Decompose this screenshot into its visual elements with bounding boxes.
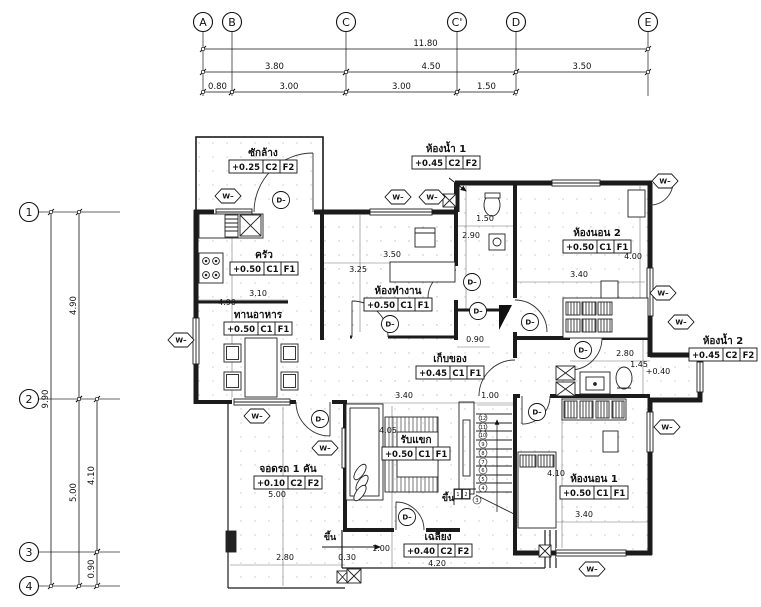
stair-number: 6 bbox=[481, 468, 484, 474]
stair-number: 11 bbox=[480, 425, 486, 431]
plan-dimension-text: 3.40 bbox=[570, 270, 588, 279]
dimension-node bbox=[201, 70, 204, 73]
window-symbol-label: W– bbox=[175, 337, 187, 345]
column-grid-label: D bbox=[512, 16, 520, 29]
floor-plan-sheet: ABCC'DE123411.803.804.503.500.803.003.00… bbox=[0, 0, 761, 607]
dimension-node bbox=[455, 90, 458, 93]
stair-number: 8 bbox=[481, 451, 484, 457]
room-f-tag: F2 bbox=[743, 351, 755, 361]
dimension-text: 4.50 bbox=[422, 62, 441, 72]
dimension-node bbox=[77, 397, 80, 400]
column-grid-label: C' bbox=[452, 16, 463, 29]
bed-bedroom1 bbox=[518, 452, 556, 528]
room-f-tag: F1 bbox=[418, 301, 430, 311]
stair-number: 4 bbox=[481, 486, 484, 492]
toilet-bath2 bbox=[616, 367, 632, 389]
window-symbol-label: W– bbox=[392, 194, 404, 202]
room-f-tag: F1 bbox=[614, 489, 626, 499]
plan-dimension-text: 4.10 bbox=[547, 469, 565, 478]
room-level: +0.10 bbox=[257, 479, 285, 489]
dimension-node bbox=[201, 47, 204, 50]
door-symbol-label: D– bbox=[532, 409, 542, 417]
dimension-node bbox=[344, 70, 347, 73]
dimension-node bbox=[49, 584, 52, 587]
stair-number: 9 bbox=[481, 442, 484, 448]
plan-dimension-text: 2.90 bbox=[462, 231, 480, 240]
plan-dimension-text: 4.00 bbox=[624, 252, 642, 261]
window bbox=[193, 318, 199, 364]
room-name: ทานอาหาร bbox=[234, 310, 283, 321]
plan-dimension-text: 0.30 bbox=[338, 553, 356, 562]
room-level: +0.45 bbox=[692, 351, 720, 361]
room-level: +0.45 bbox=[419, 369, 447, 379]
basin-bath1 bbox=[489, 234, 505, 250]
room-level: +0.45 bbox=[415, 159, 443, 169]
room-f-tag: F2 bbox=[283, 163, 295, 173]
row-grid-label: 3 bbox=[26, 546, 33, 559]
tv-cabinet bbox=[346, 404, 383, 503]
window-symbol-label: W– bbox=[319, 445, 331, 453]
plan-dimension-text: 1.50 bbox=[476, 214, 494, 223]
window bbox=[552, 180, 600, 186]
dimension-text: 11.80 bbox=[413, 39, 437, 49]
room-c-tag: C1 bbox=[266, 265, 278, 275]
plan-dimension-text: 2.80 bbox=[616, 349, 634, 358]
column-grid-label: B bbox=[228, 16, 236, 29]
window-symbol-label: W– bbox=[426, 194, 438, 202]
stair-number: 2 bbox=[464, 492, 467, 498]
room-name: เฉลียง bbox=[424, 531, 451, 543]
duct-box bbox=[443, 194, 456, 207]
dimension-text: 3.50 bbox=[573, 62, 592, 72]
room-c-tag: C1 bbox=[418, 450, 430, 460]
door-symbol-label: D– bbox=[385, 321, 395, 329]
dimension-text: 3.00 bbox=[392, 82, 411, 92]
stair-number: 5 bbox=[481, 477, 484, 483]
stair-number: 1 bbox=[456, 492, 459, 498]
room-f-tag: F2 bbox=[308, 479, 320, 489]
room-name: ห้องน้ำ 1 bbox=[426, 141, 466, 155]
room-name: ซักล้าง bbox=[248, 147, 278, 159]
room-name: ครัว bbox=[255, 249, 273, 261]
kitchen-counter bbox=[199, 214, 263, 238]
stair-number: 7 bbox=[481, 460, 484, 466]
window bbox=[370, 209, 432, 215]
room-name: เก็บของ bbox=[433, 351, 467, 365]
window bbox=[556, 550, 626, 556]
plan-dimension-text: 1.00 bbox=[372, 544, 390, 553]
dimension-node bbox=[95, 397, 98, 400]
door-symbol-label: D– bbox=[473, 308, 483, 316]
door-symbol-label: D– bbox=[315, 416, 325, 424]
door-symbol-label: D– bbox=[578, 347, 588, 355]
plan-dimension-text: 2.80 bbox=[276, 553, 294, 562]
dimension-node bbox=[514, 90, 517, 93]
room-c-tag: C1 bbox=[452, 369, 464, 379]
door-symbol-label: D– bbox=[276, 197, 286, 205]
window-symbol-label: W– bbox=[661, 424, 673, 432]
window-symbol-label: W– bbox=[659, 178, 671, 186]
dimension-node bbox=[95, 584, 98, 587]
plan-dimension-text: 5.00 bbox=[268, 490, 286, 499]
window bbox=[697, 362, 703, 392]
room-name: ห้องทำงาน bbox=[374, 285, 421, 297]
room-f-tag: F1 bbox=[284, 265, 296, 275]
row-grid-label: 1 bbox=[26, 206, 33, 219]
cabinet-bedroom2 bbox=[628, 190, 645, 217]
dimension-text: 9.90 bbox=[41, 390, 51, 409]
plan-dimension-text: 3.40 bbox=[575, 510, 593, 519]
room-level: +0.50 bbox=[227, 325, 255, 335]
room-c-tag: C2 bbox=[725, 351, 737, 361]
stair-number: 12 bbox=[480, 416, 486, 422]
room-level: +0.50 bbox=[385, 450, 413, 460]
door-symbol-label: D– bbox=[402, 514, 412, 522]
room-c-tag: C1 bbox=[260, 325, 272, 335]
room-f-tag: F1 bbox=[436, 450, 448, 460]
vanity-bath2 bbox=[580, 372, 610, 394]
stair-number: 3 bbox=[475, 498, 478, 504]
window bbox=[234, 399, 290, 405]
window-symbol-label: W– bbox=[657, 290, 669, 298]
room-c-tag: C2 bbox=[440, 547, 452, 557]
room-c-tag: C1 bbox=[596, 489, 608, 499]
room-f-tag: F2 bbox=[458, 547, 470, 557]
room-c-tag: C2 bbox=[290, 479, 302, 489]
dimension-text: 1.50 bbox=[477, 82, 496, 92]
room-level: +0.50 bbox=[563, 489, 591, 499]
door-symbol-label: D– bbox=[525, 319, 535, 327]
stair-number: 10 bbox=[480, 433, 486, 439]
dimension-node bbox=[95, 550, 98, 553]
room-name: จอดรถ 1 คัน bbox=[259, 463, 316, 475]
dimension-node bbox=[646, 47, 649, 50]
plan-dimension-text: +0.40 bbox=[646, 367, 671, 376]
window-symbol-label: W– bbox=[675, 319, 687, 327]
dimension-text: 0.80 bbox=[208, 82, 227, 92]
room-name: ห้องน้ำ 2 bbox=[703, 333, 743, 347]
plan-dimension-text: 4.05 bbox=[379, 426, 397, 435]
room-c-tag: C1 bbox=[599, 243, 611, 253]
dimension-node bbox=[77, 584, 80, 587]
room-level: +0.25 bbox=[232, 163, 260, 173]
plan-dimension-text: 1.00 bbox=[481, 391, 499, 400]
dimension-text: 3.00 bbox=[280, 82, 299, 92]
toilet-bath1 bbox=[484, 193, 500, 216]
plan-dimension-text: 3.10 bbox=[249, 289, 267, 298]
room-name: รับแขก bbox=[400, 434, 431, 446]
column-grid-label: A bbox=[199, 16, 207, 29]
door-symbol-label: D– bbox=[467, 279, 477, 287]
stove bbox=[199, 253, 223, 283]
plan-dimension-text: 4.20 bbox=[428, 559, 446, 568]
dimension-node bbox=[514, 70, 517, 73]
bed-bedroom2 bbox=[563, 298, 648, 338]
floor-plan-drawing: ABCC'DE123411.803.804.503.500.803.003.00… bbox=[0, 0, 761, 607]
plan-dimension-text: 0.90 bbox=[466, 335, 484, 344]
dimension-node bbox=[49, 210, 52, 213]
room-name: ห้องนอน 1 bbox=[570, 473, 618, 485]
room-f-tag: F1 bbox=[470, 369, 482, 379]
dimension-text: 4.10 bbox=[87, 466, 97, 485]
room-name: ห้องนอน 2 bbox=[573, 227, 621, 239]
plan-dimension-text: 4.90 bbox=[218, 298, 236, 307]
plan-dimension-text: 3.25 bbox=[349, 265, 367, 274]
dimension-text: 0.90 bbox=[87, 560, 97, 579]
dimension-node bbox=[646, 70, 649, 73]
dimension-text: 4.90 bbox=[69, 296, 79, 315]
plan-dimension-text: 3.50 bbox=[383, 250, 401, 259]
plan-dimension-text: 3.40 bbox=[395, 391, 413, 400]
window bbox=[647, 412, 653, 452]
room-c-tag: C2 bbox=[448, 159, 460, 169]
dimension-node bbox=[344, 90, 347, 93]
window-symbol-label: W– bbox=[586, 566, 598, 574]
dimension-node bbox=[201, 90, 204, 93]
side-table-bedroom1 bbox=[603, 431, 618, 452]
column-grid-label: E bbox=[645, 16, 652, 29]
window-symbol-label: W– bbox=[251, 413, 263, 421]
room-level: +0.40 bbox=[407, 547, 435, 557]
wardrobe-bedroom1 bbox=[562, 399, 626, 420]
room-f-tag: F2 bbox=[466, 159, 478, 169]
dimension-text: 5.00 bbox=[69, 483, 79, 502]
room-level: +0.50 bbox=[233, 265, 261, 275]
window-symbol-label: W– bbox=[222, 193, 234, 201]
room-c-tag: C2 bbox=[265, 163, 277, 173]
row-grid-label: 2 bbox=[26, 393, 33, 406]
room-c-tag: C1 bbox=[400, 301, 412, 311]
column-grid-label: C bbox=[342, 16, 350, 29]
bedside-table-bedroom2 bbox=[601, 281, 618, 298]
dimension-node bbox=[230, 90, 233, 93]
room-f-tag: F1 bbox=[278, 325, 290, 335]
dimension-text: 3.80 bbox=[265, 62, 284, 72]
room-level: +0.50 bbox=[367, 301, 395, 311]
row-grid-label: 4 bbox=[26, 580, 33, 593]
room-level: +0.50 bbox=[566, 243, 594, 253]
dimension-node bbox=[77, 210, 80, 213]
